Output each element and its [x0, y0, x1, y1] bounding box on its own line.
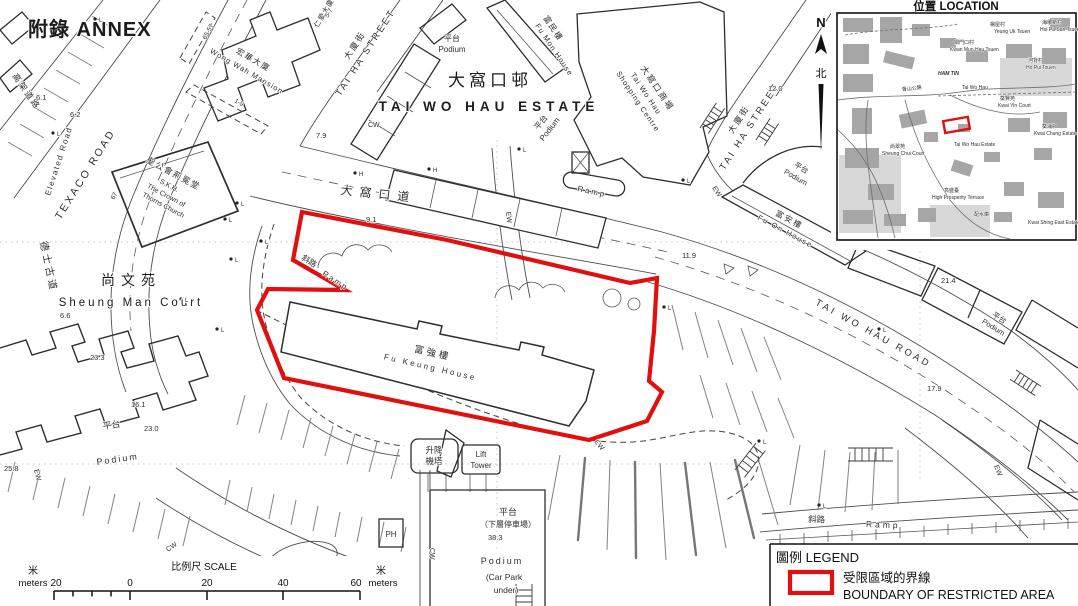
cw-marker: CW — [368, 122, 380, 129]
block-number: 67 — [110, 191, 120, 201]
ramp-label-zh: 斜路 — [808, 514, 826, 525]
scale-bar: 比例尺 SCALE 米 meters 20 0 20 40 60 米 meter… — [0, 556, 416, 606]
spot-height: 21.4 — [941, 276, 956, 285]
lamp-label: L — [241, 202, 245, 208]
podium-label-zh: 平台 — [444, 33, 460, 43]
lift-tower-zh2: 機塔 — [425, 456, 443, 466]
inset-label: Sheung Chui Court — [882, 151, 925, 157]
spot-height: 6.2 — [70, 110, 80, 119]
spot-height: 9.1 — [366, 215, 376, 224]
scale-tick-label: 20 — [50, 578, 62, 589]
sheung-man-court-en: Sheung Man Court — [59, 297, 204, 309]
carpark-podium-zh: 平台 — [499, 506, 517, 517]
carpark-under-en1: (Car Park — [486, 572, 523, 582]
estate-name-en: TAI WO HAU ESTATE — [379, 99, 600, 114]
spot-height: 38.3 — [488, 533, 503, 542]
podium-label-en: Podium — [96, 451, 139, 467]
cw-marker: CW — [428, 548, 435, 560]
lamp-label: L — [229, 218, 233, 224]
legend-panel: 圖例 LEGEND 受限區域的界線 BOUNDARY OF RESTRICTED… — [770, 544, 1078, 606]
spot-height: 6.6 — [60, 311, 70, 320]
block-number: 65-57 — [202, 23, 216, 41]
lamp-label: L — [823, 504, 827, 510]
inset-label: 關門口村 — [954, 39, 974, 46]
spot-height: 6.1 — [36, 93, 46, 102]
scale-title: 比例尺 SCALE — [171, 560, 237, 573]
lamp-post-markers — [51, 17, 880, 506]
estate-name-zh: 大窩口邨 — [448, 71, 532, 90]
lamp-label: L — [668, 306, 672, 312]
ew-marker: EW — [32, 469, 42, 482]
inset-title: 位置 LOCATION — [913, 0, 998, 13]
north-arrow-shaft — [819, 84, 824, 152]
inset-label: Kwan Mun Hau Tsuen — [950, 47, 999, 53]
lamp-label: L — [523, 148, 527, 154]
north-zh: 北 — [816, 67, 827, 80]
spot-height: 17.9 — [927, 384, 942, 393]
inset-label: High Prosperity Terrace — [932, 195, 984, 201]
inset-label: Kwai Chung Estate — [1034, 131, 1077, 137]
ph-label: PH — [385, 530, 396, 539]
inset-label: Hoi Pa San Tsuen — [1040, 27, 1078, 33]
ew-marker: EW — [992, 464, 1003, 477]
lamp-label: H — [433, 168, 437, 174]
scale-tick-label: 40 — [277, 578, 289, 589]
legend-title: 圖例 LEGEND — [776, 550, 859, 565]
scale-tick-label: 20 — [201, 578, 213, 589]
sheung-man-court-zh: 尚文苑 — [101, 272, 161, 288]
inset-label: 尚翠苑 — [890, 143, 905, 150]
inset-label: Yeung Uk Tsuen — [994, 29, 1030, 35]
lamp-label: L — [265, 240, 269, 246]
north-letter: N — [816, 15, 825, 30]
carpark-podium-en: Podium — [481, 556, 524, 566]
location-inset-map: 位置 LOCATION 楊屋村 — [837, 0, 1078, 240]
spot-height: 25.8 — [4, 464, 19, 473]
scale-unit-zh-left: 米 — [28, 564, 38, 577]
inset-label: Tai Wo Hau Estate — [954, 142, 996, 148]
scale-unit-zh-right: 米 — [376, 564, 386, 577]
podium-label-en: Podium — [438, 45, 465, 54]
inset-label: 海壩新村 — [1042, 19, 1062, 26]
spot-height: 23.0 — [144, 424, 159, 433]
scale-tick-label: 60 — [350, 578, 362, 589]
lamp-label: L — [883, 328, 887, 334]
inset-label: Kwai Shing East Estate — [1028, 220, 1078, 226]
scale-unit-en-left: meters — [18, 578, 47, 589]
lamp-label: L — [763, 440, 767, 446]
ew-marker: EW — [710, 185, 722, 199]
carpark-under-zh: （下層停車場） — [480, 519, 536, 529]
inset-label: Tai Wo Hau — [962, 85, 988, 91]
podium-label-zh: 平台 — [102, 418, 121, 431]
lift-tower-zh1: 升降 — [425, 445, 443, 455]
ew-marker: EW — [592, 439, 605, 452]
inset-label: 河背村 — [1028, 57, 1043, 64]
inset-label: 葵賢苑 — [1000, 95, 1015, 102]
legend-item-en: BOUNDARY OF RESTRICTED AREA — [843, 588, 1055, 602]
inset-label: HAM TIN — [938, 71, 959, 77]
spot-height: 16.1 — [131, 400, 146, 409]
inset-label: 楊屋村 — [990, 21, 1005, 28]
spot-height: 11.9 — [682, 251, 696, 260]
inset-label: 高盛臺 — [944, 187, 959, 194]
lamp-label: L — [235, 258, 239, 264]
texaco-road-zh: 德士古道 — [37, 240, 61, 294]
tai-wo-hau-road-label: TAI WO HAU ROAD — [813, 297, 933, 370]
lift-tower-en2: Tower — [470, 461, 492, 470]
legend-item-zh: 受限區域的界線 — [843, 570, 931, 585]
inset-label: 配水庫 — [974, 211, 989, 218]
scale-tick-label: 0 — [127, 578, 133, 589]
annex-map: 附錄 ANNEX 大窩口邨 TAI WO HAU ESTATE 平台 Podiu… — [0, 0, 1078, 606]
lamp-label: L — [221, 328, 225, 334]
inset-label: 葵涌邨 — [1042, 123, 1057, 130]
scale-unit-en-right: meters — [368, 578, 397, 589]
spot-height: 23.3 — [90, 353, 105, 362]
spot-height: 7.9 — [316, 131, 326, 140]
ramp-label-en: Ramp — [866, 519, 901, 530]
elevated-road-zh: 高架道路 — [10, 71, 42, 111]
spot-height: 12.0 — [768, 84, 783, 93]
cw-marker: CW — [165, 541, 179, 554]
carpark-under-en2: under) — [494, 585, 519, 595]
inset-label: Ho Pui Tsuen — [1026, 65, 1056, 71]
ew-marker: EW — [504, 211, 512, 223]
ramp-label: Ramp — [577, 184, 608, 199]
annex-title: 附錄 ANNEX — [28, 17, 152, 41]
north-arrow-head — [815, 34, 827, 54]
lamp-label: H — [359, 172, 363, 178]
inset-label: Kwai Yin Court — [998, 103, 1031, 109]
lift-tower-en1: Lift — [476, 450, 487, 459]
